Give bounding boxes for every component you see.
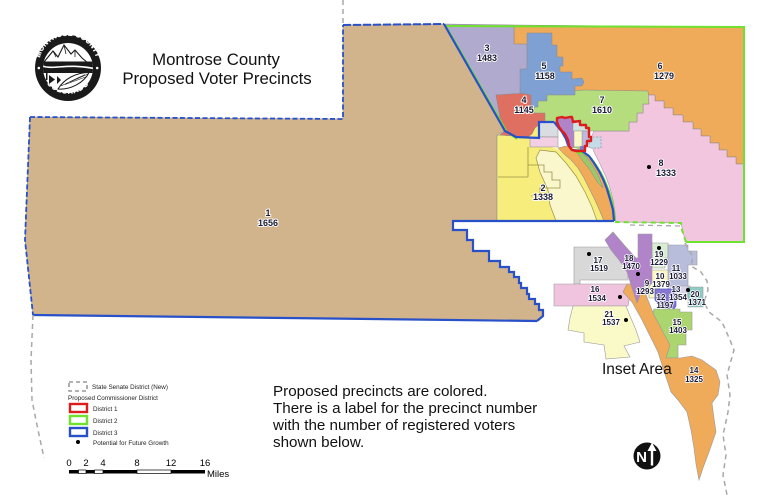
svg-text:Proposed Commissioner District: Proposed Commissioner District bbox=[68, 395, 158, 402]
svg-text:1483: 1483 bbox=[477, 53, 497, 63]
svg-text:8: 8 bbox=[658, 158, 663, 168]
svg-text:0: 0 bbox=[66, 458, 71, 469]
svg-text:Inset Area: Inset Area bbox=[602, 361, 672, 378]
svg-text:4: 4 bbox=[100, 458, 105, 469]
svg-text:shown below.: shown below. bbox=[273, 434, 364, 451]
svg-text:14: 14 bbox=[690, 366, 699, 375]
svg-text:1229: 1229 bbox=[650, 258, 668, 267]
svg-text:Proposed Voter Precincts: Proposed Voter Precincts bbox=[122, 69, 311, 88]
svg-text:District 3: District 3 bbox=[93, 430, 118, 437]
svg-text:State Senate District (New): State Senate District (New) bbox=[92, 384, 168, 391]
svg-text:1158: 1158 bbox=[535, 71, 555, 81]
svg-text:1610: 1610 bbox=[592, 105, 612, 115]
svg-text:Potential for Future Growth: Potential for Future Growth bbox=[93, 440, 169, 447]
svg-text:1534: 1534 bbox=[588, 294, 606, 303]
svg-text:12: 12 bbox=[166, 458, 177, 469]
svg-text:1338: 1338 bbox=[533, 192, 553, 202]
svg-text:2: 2 bbox=[83, 458, 88, 469]
svg-text:N: N bbox=[636, 449, 647, 466]
svg-text:1145: 1145 bbox=[514, 105, 534, 115]
svg-text:There is a label for the preci: There is a label for the precinct number bbox=[273, 400, 537, 417]
svg-text:16: 16 bbox=[591, 285, 600, 294]
svg-text:1470: 1470 bbox=[622, 262, 640, 271]
svg-text:1325: 1325 bbox=[685, 375, 703, 384]
svg-text:1: 1 bbox=[265, 208, 270, 218]
svg-text:1293: 1293 bbox=[636, 287, 654, 296]
svg-text:8: 8 bbox=[134, 458, 139, 469]
svg-text:1033: 1033 bbox=[669, 272, 687, 281]
svg-text:Miles: Miles bbox=[207, 469, 229, 480]
svg-text:1333: 1333 bbox=[656, 168, 676, 178]
svg-text:with the number of registered: with the number of registered voters bbox=[272, 417, 516, 434]
svg-text:1279: 1279 bbox=[654, 71, 674, 81]
svg-text:3: 3 bbox=[484, 43, 489, 53]
svg-text:1656: 1656 bbox=[258, 218, 278, 228]
svg-text:1379: 1379 bbox=[652, 280, 670, 289]
svg-text:District 1: District 1 bbox=[93, 406, 118, 413]
svg-text:Proposed precincts are colored: Proposed precincts are colored. bbox=[273, 383, 487, 400]
svg-text:Montrose County: Montrose County bbox=[152, 50, 280, 69]
svg-text:1537: 1537 bbox=[602, 318, 620, 327]
svg-text:1371: 1371 bbox=[688, 298, 706, 307]
svg-text:16: 16 bbox=[200, 458, 211, 469]
svg-text:1403: 1403 bbox=[669, 326, 687, 335]
svg-text:1519: 1519 bbox=[590, 264, 608, 273]
svg-text:7: 7 bbox=[599, 95, 604, 105]
svg-text:6: 6 bbox=[657, 61, 662, 71]
svg-text:District 2: District 2 bbox=[93, 418, 118, 425]
svg-text:1197: 1197 bbox=[656, 301, 674, 310]
svg-text:4: 4 bbox=[521, 95, 526, 105]
svg-text:5: 5 bbox=[541, 61, 546, 71]
